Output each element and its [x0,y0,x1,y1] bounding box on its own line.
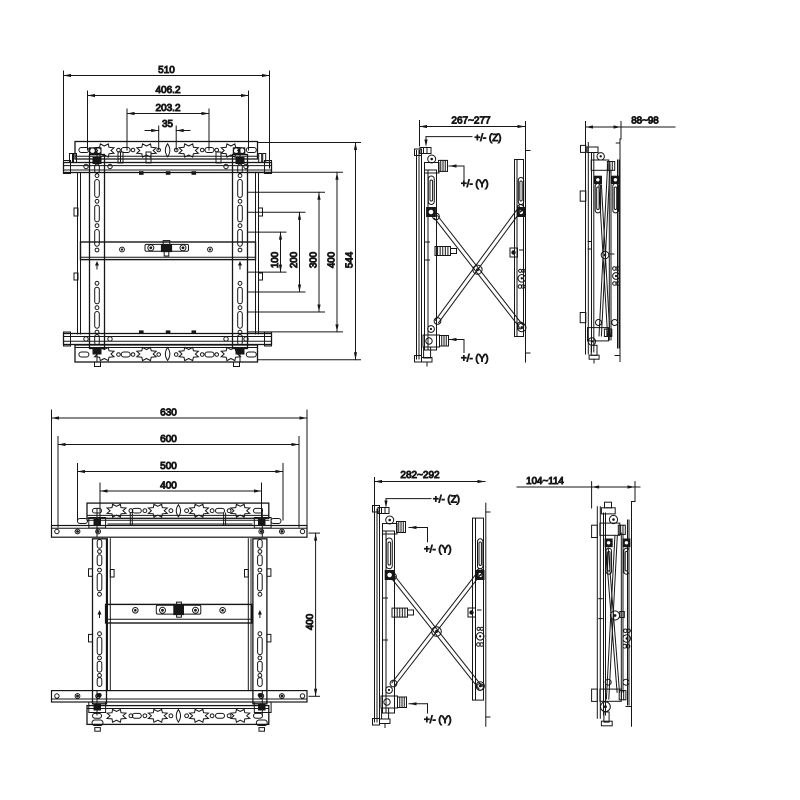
svg-text:400: 400 [160,481,177,492]
svg-text:400: 400 [305,613,316,630]
svg-text:+/- (Y): +/- (Y) [424,545,452,556]
svg-text:200: 200 [289,251,300,268]
svg-text:+/- (Y): +/- (Y) [461,354,489,365]
svg-text:300: 300 [309,251,320,268]
svg-text:88~98: 88~98 [631,116,659,127]
svg-text:630: 630 [160,408,177,419]
svg-text:282~292: 282~292 [400,470,440,481]
svg-text:544: 544 [345,251,356,268]
svg-text:+/- (Y): +/- (Y) [424,715,452,726]
svg-text:+/- (Z): +/- (Z) [475,133,502,144]
svg-text:400: 400 [327,251,338,268]
svg-text:100: 100 [270,251,281,268]
svg-text:+/- (Z): +/- (Z) [433,495,460,506]
svg-text:600: 600 [160,434,177,445]
svg-text:203.2: 203.2 [155,103,180,114]
svg-text:267~277: 267~277 [451,116,491,127]
svg-text:406.2: 406.2 [155,85,180,96]
svg-text:510: 510 [158,65,175,76]
svg-text:104~114: 104~114 [526,476,564,487]
svg-text:+/- (Y): +/- (Y) [461,179,489,190]
svg-text:500: 500 [160,461,177,472]
svg-text:35: 35 [162,119,173,130]
